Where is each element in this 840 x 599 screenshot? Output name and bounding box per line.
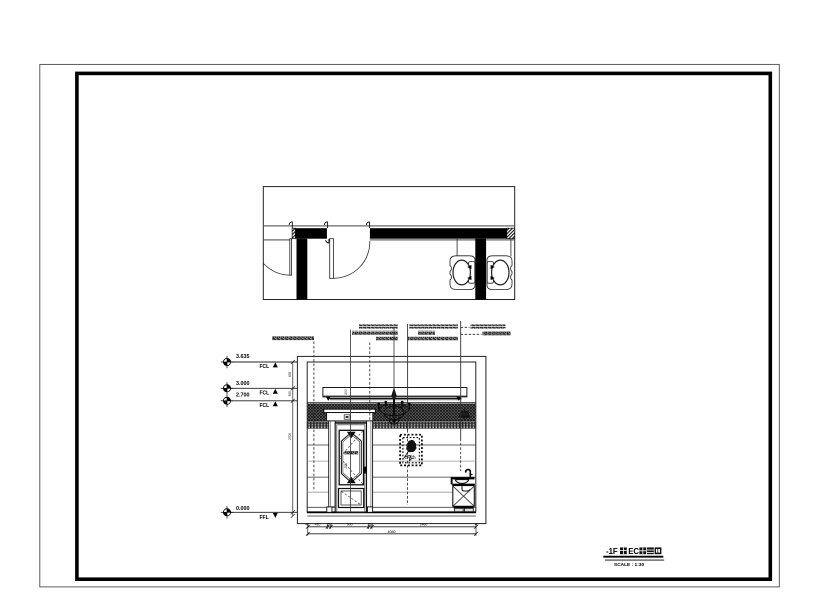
svg-text:FFL: FFL <box>260 515 269 521</box>
svg-text:635: 635 <box>288 371 292 377</box>
svg-text:2.700: 2.700 <box>236 393 250 399</box>
svg-text:EC: EC <box>628 547 639 556</box>
svg-text:SCALE : 1:30: SCALE : 1:30 <box>614 562 644 568</box>
svg-text:40: 40 <box>305 523 309 527</box>
svg-text:3.635: 3.635 <box>236 354 250 360</box>
svg-text:4080: 4080 <box>388 530 396 534</box>
svg-text:300: 300 <box>288 391 292 397</box>
svg-text:2460: 2460 <box>420 523 428 527</box>
svg-text:FCL: FCL <box>260 364 270 370</box>
svg-text:40: 40 <box>475 523 479 527</box>
svg-text:FCL: FCL <box>260 403 270 409</box>
svg-text:900: 900 <box>347 523 353 527</box>
svg-text:0.000: 0.000 <box>236 506 250 512</box>
svg-text:200: 200 <box>326 523 332 527</box>
svg-text:200: 200 <box>367 523 373 527</box>
svg-text:410: 410 <box>315 523 321 527</box>
svg-text:-1F: -1F <box>606 547 618 556</box>
svg-text:200: 200 <box>344 389 348 395</box>
svg-text:2700: 2700 <box>288 433 292 440</box>
svg-text:200: 200 <box>344 463 348 469</box>
svg-text:3.000: 3.000 <box>236 381 250 387</box>
svg-text:FCL: FCL <box>260 390 270 396</box>
